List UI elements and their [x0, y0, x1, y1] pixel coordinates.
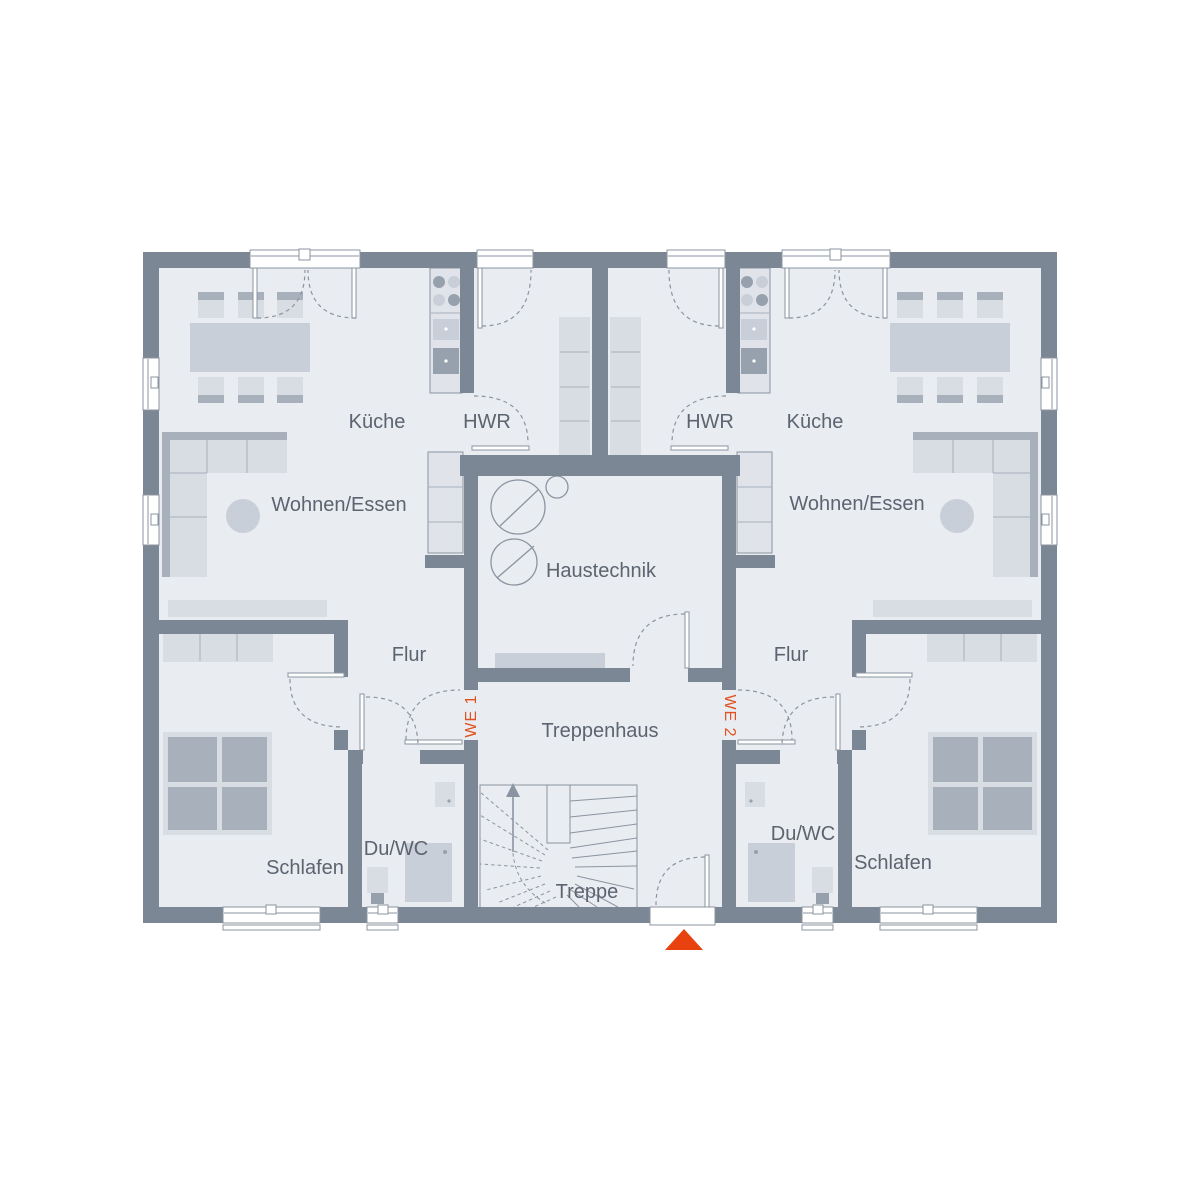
window-icon: [880, 905, 977, 930]
rug-right-icon: [940, 499, 974, 533]
bed-left-icon: [163, 732, 272, 835]
room-label-bath-left: Du/WC: [364, 838, 428, 860]
bed-right-icon: [928, 732, 1037, 835]
window-icon: [1041, 495, 1057, 545]
room-label-kitchen-left: Küche: [349, 411, 406, 433]
room-label-living-right: Wohnen/Essen: [789, 493, 924, 515]
stove-left-icon: [430, 268, 462, 393]
room-label-bedroom-left: Schlafen: [266, 857, 344, 879]
room-label-hall-left: Flur: [392, 644, 427, 666]
sideboard-right-icon: [873, 600, 1032, 617]
entrance-arrow-icon: [665, 929, 703, 950]
window-icon: [367, 905, 398, 930]
dining-set-right-icon: [890, 292, 1010, 403]
room-label-utility-right: HWR: [686, 411, 734, 433]
room-label-stairwell: Treppenhaus: [541, 720, 658, 742]
kitchen-counter-right-icon: [737, 452, 772, 553]
kitchen-counter-left-icon: [428, 452, 463, 553]
rug-left-icon: [226, 499, 260, 533]
sideboard-left-icon: [168, 600, 327, 617]
stove-right-icon: [738, 268, 770, 393]
room-label-technical: Haustechnik: [546, 560, 657, 582]
room-label-utility-left: HWR: [463, 411, 511, 433]
window-icon: [143, 495, 159, 545]
unit-label-we2: WE 2: [721, 694, 738, 737]
bench-icon: [495, 653, 605, 668]
window-icon: [802, 905, 833, 930]
room-label-hall-right: Flur: [774, 644, 809, 666]
room-label-stairs: Treppe: [556, 881, 619, 903]
room-label-kitchen-right: Küche: [787, 411, 844, 433]
room-label-bath-right: Du/WC: [771, 823, 835, 845]
sink-icon: [367, 867, 388, 893]
room-label-bedroom-right: Schlafen: [854, 852, 932, 874]
window-icon: [1041, 358, 1057, 410]
wc-icon: [745, 782, 765, 807]
sink-icon: [812, 867, 833, 893]
floor-plan-canvas: Küche HWR HWR Küche Wohnen/Essen Wohnen/…: [0, 0, 1200, 1200]
window-icon: [143, 358, 159, 410]
floor-plan-page: Küche HWR HWR Küche Wohnen/Essen Wohnen/…: [0, 0, 1200, 1200]
utility-cabinet-right-icon: [610, 317, 641, 455]
room-label-living-left: Wohnen/Essen: [271, 494, 406, 516]
wc-icon: [435, 782, 455, 807]
window-icon: [223, 905, 320, 930]
unit-label-we1: WE 1: [463, 694, 480, 737]
dining-set-left-icon: [190, 292, 310, 403]
utility-cabinet-left-icon: [559, 317, 590, 455]
